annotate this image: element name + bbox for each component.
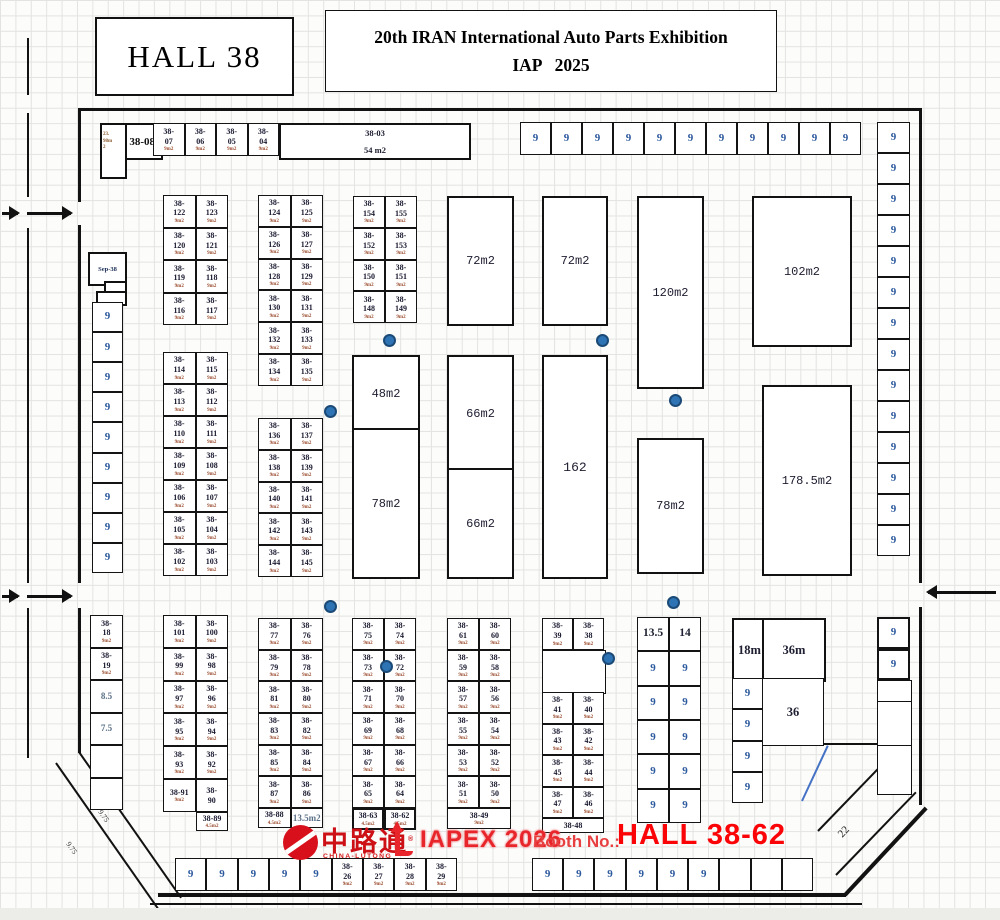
booth-cell[interactable]: 38- 429m2 [573, 724, 604, 756]
booth-cell[interactable]: 38- 669m2 [384, 745, 416, 777]
dim-label-975b: 9.75 [64, 840, 79, 856]
booth-cell[interactable]: 38- 1189m2 [196, 260, 229, 293]
iapex-arrow-icon [391, 823, 415, 861]
booth-cell[interactable]: 38- 1149m2 [163, 352, 196, 384]
booth-cell[interactable]: 9 [92, 453, 123, 483]
area-booth-72a[interactable]: 72m2 [447, 196, 514, 326]
booth-cell[interactable]: 38- 1549m2 [353, 196, 385, 228]
booth-cell[interactable]: 38- 1399m2 [291, 450, 324, 482]
booth-group-right-bold: 99 [877, 617, 910, 680]
booth-group-b2: 38- 1369m238- 1379m238- 1389m238- 1399m2… [258, 418, 323, 577]
booth-cell[interactable]: 38- 049m2 [248, 123, 280, 156]
booth-cell[interactable]: 38- 1039m2 [196, 544, 229, 576]
booth-cell[interactable]: 38- 1379m2 [291, 418, 324, 450]
booth-cell[interactable]: 9 [877, 401, 910, 432]
booth-cell[interactable]: 9 [732, 709, 763, 740]
booth-cell[interactable]: 38- 749m2 [384, 618, 416, 650]
booth-label: 38-08 [129, 136, 155, 148]
booth-cell[interactable]: 9 [637, 651, 669, 685]
booth-cell[interactable]: 9 [92, 362, 123, 392]
booth-cell[interactable]: 38- 1359m2 [291, 354, 324, 386]
booth-cell[interactable]: 38- 609m2 [479, 618, 511, 650]
booth-cell[interactable]: 9 [732, 741, 763, 772]
wall-left-c [78, 608, 81, 753]
area-booth-36m[interactable]: 36m [762, 618, 826, 682]
booth-cell[interactable]: 38- 1319m2 [291, 290, 324, 322]
booth-38-08-tab: 23. 98m 2 [100, 123, 127, 179]
booth-cell[interactable]: 38- 959m2 [163, 713, 196, 746]
booth-cell[interactable]: 38- 1099m2 [163, 448, 196, 480]
booth-cell[interactable]: 38- 189m2 [90, 615, 123, 648]
booth-group-b1: 38- 1249m238- 1259m238- 1269m238- 1279m2… [258, 195, 323, 386]
marker-dot [324, 600, 337, 613]
booth-cell[interactable]: 8.5 [90, 680, 123, 713]
booth-cell[interactable]: 38- 1529m2 [353, 228, 385, 260]
booth-cell[interactable]: 38- 299m2 [426, 858, 457, 891]
booth-cell[interactable]: 9 [613, 122, 644, 155]
booth-cell[interactable]: 38- 1329m2 [258, 322, 291, 354]
wall-top [79, 108, 922, 111]
booth-cell[interactable]: 38- 1489m2 [353, 291, 385, 323]
floor-plan: HALL 38 20th IRAN International Auto Par… [0, 0, 1000, 920]
booth-cell[interactable]: 38- 679m2 [352, 745, 384, 777]
booth-cell[interactable]: 38- 1069m2 [163, 480, 196, 512]
wall-left-a [78, 108, 81, 202]
booth-cell[interactable]: 38- 419m2 [542, 692, 573, 724]
booth-cell[interactable]: 38- 649m2 [384, 776, 416, 808]
booth-cell[interactable]: 9 [626, 858, 657, 891]
booth-cell[interactable]: 9 [732, 772, 763, 803]
booth-cell[interactable]: 38- 1409m2 [258, 482, 291, 514]
booth-cell[interactable]: 38- 979m2 [163, 681, 196, 714]
booth-cell[interactable]: 38- 699m2 [352, 713, 384, 745]
booth-group-h2: 38- 419m238- 409m238- 439m238- 429m238- … [542, 692, 604, 818]
booth-cell[interactable]: 9 [532, 858, 563, 891]
booth-group-d: 38- 1019m238- 1009m238- 999m238- 989m238… [163, 615, 228, 812]
booth-cell[interactable]: 38- 569m2 [479, 681, 511, 713]
booth-cell[interactable]: 9 [669, 686, 701, 720]
booth-cell[interactable]: 38- 539m2 [447, 745, 479, 777]
booth-group-a2: 38- 1149m238- 1159m238- 1139m238- 1129m2… [163, 352, 228, 576]
booth-cell[interactable]: 9 [830, 122, 861, 155]
booth-cell[interactable]: 38- 1209m2 [163, 228, 196, 261]
booth-cell[interactable]: 38- 1299m2 [291, 259, 324, 291]
booth-group-f: 38- 759m238- 749m238- 739m238- 729m238- … [352, 618, 416, 808]
area-booth-66a[interactable]: 66m2 [447, 355, 514, 472]
hall-title: HALL 38 [127, 39, 261, 75]
wall-bottom-outer [150, 903, 862, 905]
booth-cell[interactable]: 9 [269, 858, 300, 891]
booth-cell[interactable]: 38- 689m2 [384, 713, 416, 745]
entrance-arrow-icon [2, 212, 18, 215]
booth-cell[interactable]: 38- 799m2 [258, 650, 291, 682]
booth-cell[interactable]: 38- 769m2 [291, 618, 324, 650]
booth-cell[interactable]: 38- 989m2 [196, 648, 229, 681]
booth-group-g: 38- 619m238- 609m238- 599m238- 589m238- … [447, 618, 511, 808]
booth-group-right-col: 99999999999999 [877, 122, 910, 556]
booth-cell[interactable]: 9 [644, 122, 675, 155]
booth-cell[interactable]: 9 [92, 302, 123, 332]
booth-cell[interactable]: 38- 779m2 [258, 618, 291, 650]
booth-cell[interactable]: 9 [877, 122, 910, 153]
booth-cell[interactable]: 38- 719m2 [352, 681, 384, 713]
booth-cell[interactable]: 38- 599m2 [447, 650, 479, 682]
booth-cell[interactable]: 38- 759m2 [352, 618, 384, 650]
booth-cell[interactable]: 9 [877, 370, 910, 401]
booth-cell[interactable]: 38- 869m2 [291, 776, 324, 808]
booth-cell[interactable]: 38- 1419m2 [291, 482, 324, 514]
booth-cell[interactable]: 9 [582, 122, 613, 155]
booth-label: Sep-38 [98, 266, 117, 273]
booth-cell[interactable]: 9 [877, 184, 910, 215]
booth-cell[interactable]: 38- 389m2 [573, 618, 604, 650]
booth-cell[interactable]: 9 [877, 649, 910, 681]
booth-group-bottom-left: 9999938- 269m238- 279m238- 289m238- 299m… [175, 858, 457, 891]
area-booth-66b[interactable]: 66m2 [447, 468, 514, 579]
entrance-arrow-icon [2, 595, 18, 598]
booth-cell[interactable]: 38- 1339m2 [291, 322, 324, 354]
booth-cell[interactable]: 38- 1089m2 [196, 448, 229, 480]
empty-cell[interactable] [782, 858, 813, 891]
wall-right-lower [919, 607, 922, 805]
booth-cell[interactable]: 38- 1019m2 [163, 615, 196, 648]
area-booth-48[interactable]: 48m2 [352, 355, 420, 432]
booth-group-89: 38-894.5m2 [196, 812, 228, 831]
booth-cell[interactable]: 9 [175, 858, 206, 891]
booth-cell[interactable]: 38- 519m2 [447, 776, 479, 808]
booth-cell[interactable]: 9 [877, 494, 910, 525]
booth-cell[interactable]: 38- 1459m2 [291, 545, 324, 577]
booth-cell[interactable]: 38- 079m2 [153, 123, 185, 156]
booth-group-top-nine: 99999999999 [520, 122, 861, 155]
booth-cell[interactable]: 9 [877, 277, 910, 308]
booth-cell[interactable]: 9 [300, 858, 331, 891]
wall-right-upper [919, 108, 922, 583]
booth-cell[interactable]: 38- 659m2 [352, 776, 384, 808]
booth-cell[interactable]: 38- 1239m2 [196, 195, 229, 228]
booth-cell[interactable]: 9 [92, 543, 123, 573]
marker-dot [669, 394, 682, 407]
booth-cell[interactable]: 38- 1119m2 [196, 416, 229, 448]
booth-cell[interactable]: 38- 549m2 [479, 713, 511, 745]
booth-cell[interactable]: 38- 1249m2 [258, 195, 291, 227]
booth-cell[interactable]: 38- 1499m2 [385, 291, 417, 323]
booth-group-a1: 38- 1229m238- 1239m238- 1209m238- 1219m2… [163, 195, 228, 325]
booth-cell[interactable]: 38- 1129m2 [196, 384, 229, 416]
booth-area-note: 23. 98m 2 [103, 132, 112, 150]
area-booth-78b[interactable]: 78m2 [637, 438, 704, 574]
booth-cell[interactable]: 38- 1169m2 [163, 293, 196, 326]
exhibition-title-line1: 20th IRAN International Auto Parts Exhib… [374, 27, 727, 48]
exhibition-title-box: 20th IRAN International Auto Parts Exhib… [325, 10, 777, 92]
entrance-arrow-icon [27, 212, 71, 215]
booth-cell[interactable]: 38- 1009m2 [196, 615, 229, 648]
booth-cell[interactable]: 9 [877, 308, 910, 339]
outer-line-c [27, 228, 29, 583]
booth-cell[interactable]: 9 [877, 246, 910, 277]
booth-cell[interactable]: 38- 839m2 [258, 713, 291, 745]
booth-cell[interactable]: 38- 1309m2 [258, 290, 291, 322]
marker-dot [380, 660, 393, 673]
booth-cell[interactable]: 9 [520, 122, 551, 155]
booth-cell[interactable]: 38- 269m2 [332, 858, 363, 891]
entrance-arrow-icon [27, 595, 71, 598]
area-booth-178[interactable]: 178.5m2 [762, 385, 852, 576]
booth-cell[interactable]: 38- 1059m2 [163, 512, 196, 544]
china-lutong-logo-icon [283, 825, 318, 860]
area-booth-162[interactable]: 162 [542, 355, 608, 579]
area-booth-72b[interactable]: 72m2 [542, 196, 608, 326]
marker-dot [596, 334, 609, 347]
area-empty-box[interactable] [542, 650, 606, 694]
booth-cell[interactable]: 9 [92, 392, 123, 422]
marker-dot [602, 652, 615, 665]
booth-label: 38-03 54 m2 [364, 125, 386, 157]
booth-cell[interactable]: 38- 1519m2 [385, 260, 417, 292]
booth-cell[interactable]: 9 [92, 332, 123, 362]
booth-group-h1: 38- 399m238- 389m2 [542, 618, 604, 650]
booth-cell[interactable]: 38- 399m2 [542, 618, 573, 650]
booth-cell[interactable]: 38- 949m2 [196, 713, 229, 746]
booth-cell[interactable]: 9 [877, 617, 910, 649]
booth-cell[interactable]: 9 [732, 678, 763, 709]
booth-cell[interactable]: 38- 1509m2 [353, 260, 385, 292]
booth-cell[interactable]: 38- 619m2 [447, 618, 479, 650]
booth-cell[interactable]: 38- 589m2 [479, 650, 511, 682]
booth-cell[interactable]: 9 [594, 858, 625, 891]
booth-cell[interactable]: 38- 1389m2 [258, 450, 291, 482]
booth-cell[interactable]: 9 [877, 463, 910, 494]
booth-cell[interactable]: 38- 929m2 [196, 746, 229, 779]
empty-cell[interactable] [90, 745, 123, 778]
marker-dot [324, 405, 337, 418]
booth-cell[interactable]: 38- 1229m2 [163, 195, 196, 228]
booth-cell[interactable]: 38- 459m2 [542, 755, 573, 787]
booth-cell[interactable]: 38- 1289m2 [258, 259, 291, 291]
marker-dot [383, 334, 396, 347]
booth-cell[interactable]: 38- 1449m2 [258, 545, 291, 577]
booth-cell[interactable]: 38- 1269m2 [258, 227, 291, 259]
outer-line-a [27, 38, 29, 95]
area-booth-36[interactable]: 36 [762, 678, 824, 746]
booth-cell[interactable]: 38- 809m2 [291, 681, 324, 713]
booth-cell[interactable]: 9 [877, 153, 910, 184]
booth-cell[interactable]: 38- 469m2 [573, 787, 604, 819]
booth-cell[interactable]: 38- 529m2 [479, 745, 511, 777]
booth-cell[interactable]: 38- 199m2 [90, 648, 123, 681]
booth-cell[interactable]: 38- 1349m2 [258, 354, 291, 386]
booth-cell[interactable]: 9 [206, 858, 237, 891]
booth-cell[interactable]: 38- 1219m2 [196, 228, 229, 261]
booth-cell[interactable]: 38- 1429m2 [258, 513, 291, 545]
wall-bottom [158, 893, 846, 897]
booth-cell[interactable]: 38- 069m2 [185, 123, 217, 156]
booth-cell[interactable]: 9 [657, 858, 688, 891]
booth-group-e: 38- 779m238- 769m238- 799m238- 789m238- … [258, 618, 323, 808]
booth-cell[interactable]: 9 [706, 122, 737, 155]
booth-cell[interactable]: 9 [551, 122, 582, 155]
outer-line-b [27, 113, 29, 197]
booth-cell[interactable]: 38- 439m2 [542, 724, 573, 756]
booth-cell[interactable]: 38- 819m2 [258, 681, 291, 713]
booth-cell[interactable]: 38- 1199m2 [163, 260, 196, 293]
booth-cell[interactable]: 9 [669, 754, 701, 788]
booth-cell[interactable]: 9 [563, 858, 594, 891]
booth-cell[interactable]: 38- 1369m2 [258, 418, 291, 450]
booth-cell[interactable]: 38- 559m2 [447, 713, 479, 745]
booth-cell[interactable]: 9 [688, 858, 719, 891]
booth-cell[interactable]: 9 [675, 122, 706, 155]
booth-cell[interactable]: 9 [768, 122, 799, 155]
booth-38-03[interactable]: 38-03 54 m2 [279, 123, 471, 160]
booth-cell[interactable]: 38- 1139m2 [163, 384, 196, 416]
hall-title-box: HALL 38 [95, 17, 294, 96]
booth-group-bottom-right: 999999 [532, 858, 813, 891]
booth-cell[interactable]: 9 [877, 432, 910, 463]
booth-cell[interactable]: 13.5 [637, 617, 669, 651]
booth-cell[interactable]: 38- 289m2 [394, 858, 425, 891]
booth-group-left-lower: 38- 189m238- 199m28.57.5 [90, 615, 123, 810]
booth-no-label: Booth No.: [533, 832, 620, 852]
booth-cell[interactable]: 9 [799, 122, 830, 155]
booth-cell[interactable]: 38- 879m2 [258, 776, 291, 808]
booth-group-e-bottom: 38-884.5m213.5m2 [258, 808, 323, 828]
wall-left-b [78, 225, 81, 583]
booth-cell[interactable]: 9 [737, 122, 768, 155]
booth-cell[interactable]: 38- 709m2 [384, 681, 416, 713]
booth-cell[interactable]: 38- 279m2 [363, 858, 394, 891]
exhibition-title-line2: IAP 2025 [512, 55, 589, 76]
booth-cell[interactable]: 9 [238, 858, 269, 891]
outer-line-d [27, 608, 29, 758]
booth-cell[interactable]: 38- 1079m2 [196, 480, 229, 512]
area-booth-78a[interactable]: 78m2 [352, 428, 420, 579]
booth-group-c: 38- 1549m238- 1559m238- 1529m238- 1539m2… [353, 196, 417, 323]
booth-cell[interactable]: 38- 1559m2 [385, 196, 417, 228]
booth-cell[interactable]: 38- 059m2 [216, 123, 248, 156]
area-booth-120[interactable]: 120m2 [637, 196, 704, 389]
booth-cell[interactable]: 9 [877, 525, 910, 556]
empty-cell[interactable] [719, 858, 750, 891]
booth-cell[interactable]: 38- 859m2 [258, 745, 291, 777]
booth-cell[interactable]: 38- 1259m2 [291, 195, 324, 227]
area-booth-102[interactable]: 102m2 [752, 196, 852, 347]
booth-cell[interactable]: 38- 849m2 [291, 745, 324, 777]
booth-cell[interactable]: 38- 1029m2 [163, 544, 196, 576]
booth-cell[interactable]: 38- 90 [196, 779, 229, 812]
booth-cell[interactable]: 14 [669, 617, 701, 651]
booth-cell[interactable]: 9 [92, 513, 123, 543]
booth-cell[interactable]: 38- 449m2 [573, 755, 604, 787]
marker-dot [667, 596, 680, 609]
booth-cell[interactable]: 38- 1279m2 [291, 227, 324, 259]
booth-cell[interactable]: 38- 409m2 [573, 692, 604, 724]
booth-cell[interactable]: 38- 939m2 [163, 746, 196, 779]
booth-group-i: 13.5149999999999 [637, 617, 701, 823]
booth-no-value: HALL 38-62 [617, 819, 786, 852]
booth-cell[interactable]: 9 [669, 789, 701, 823]
booth-cell[interactable]: 38-919m2 [163, 779, 196, 812]
empty-column [877, 680, 912, 795]
booth-cell[interactable]: 7.5 [90, 713, 123, 746]
booth-cell[interactable]: 38- 1539m2 [385, 228, 417, 260]
booth-cell[interactable]: 38- 1159m2 [196, 352, 229, 384]
booth-cell[interactable]: 38- 1049m2 [196, 512, 229, 544]
booth-cell[interactable]: 9 [637, 789, 669, 823]
booth-cell[interactable]: 38-894.5m2 [196, 812, 228, 831]
booth-cell[interactable]: 38- 789m2 [291, 650, 324, 682]
booth-group-j-nine: 9999 [732, 678, 763, 803]
booth-cell[interactable]: 9 [877, 339, 910, 370]
booth-cell[interactable]: 38- 1439m2 [291, 513, 324, 545]
booth-cell[interactable]: 9 [637, 720, 669, 754]
booth-cell[interactable]: 38- 1109m2 [163, 416, 196, 448]
booth-22-label: 22 [836, 824, 852, 840]
booth-cell[interactable]: 9 [877, 215, 910, 246]
booth-cell[interactable]: 9 [92, 483, 123, 513]
booth-cell[interactable]: 9 [669, 651, 701, 685]
blue-diagonal-line [801, 745, 829, 801]
booth-cell[interactable]: 38- 509m2 [479, 776, 511, 808]
booth-cell[interactable]: 38- 829m2 [291, 713, 324, 745]
booth-cell[interactable]: 38- 579m2 [447, 681, 479, 713]
entrance-arrow-icon [928, 591, 996, 594]
booth-cell[interactable]: 38- 1179m2 [196, 293, 229, 326]
booth-group-top: 38- 079m238- 069m238- 059m238- 049m2 [153, 123, 279, 156]
booth-cell[interactable]: 9 [637, 754, 669, 788]
booth-cell[interactable]: 9 [669, 720, 701, 754]
empty-cell[interactable] [751, 858, 782, 891]
booth-group-left-col: 999999999 [92, 302, 123, 573]
empty-cell[interactable] [90, 778, 123, 811]
logo-english-name: CHINA-LUTONG [323, 853, 392, 860]
booth-cell[interactable]: 38- 999m2 [163, 648, 196, 681]
booth-cell[interactable]: 38-884.5m2 [258, 808, 291, 828]
booth-cell[interactable]: 38- 969m2 [196, 681, 229, 714]
booth-cell[interactable]: 38- 479m2 [542, 787, 573, 819]
booth-cell[interactable]: 9 [92, 422, 123, 452]
booth-cell[interactable]: 9 [637, 686, 669, 720]
